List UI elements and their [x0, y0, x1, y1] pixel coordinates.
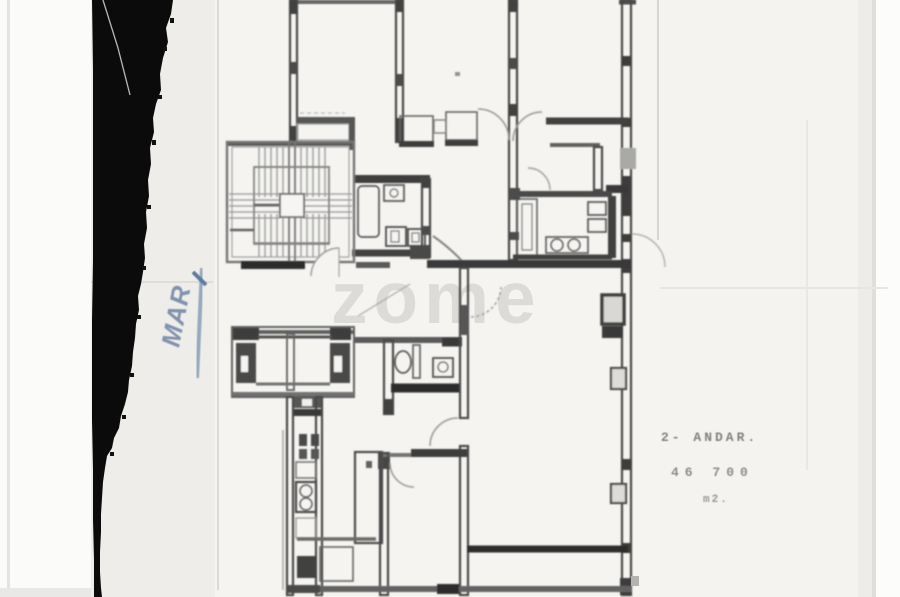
- svg-text:zome: zome: [331, 258, 542, 339]
- svg-text:m2.: m2.: [703, 494, 729, 506]
- svg-text:2- ANDAR.: 2- ANDAR.: [661, 430, 758, 445]
- svg-text:46 700: 46 700: [671, 465, 754, 480]
